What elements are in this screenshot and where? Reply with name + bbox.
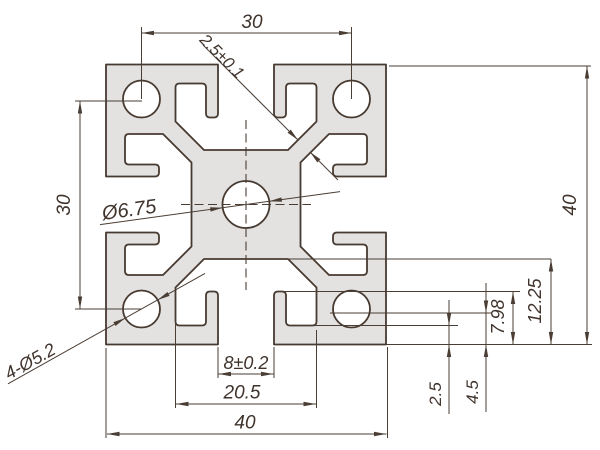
arrowhead — [585, 332, 589, 345]
dim-text-bottom-40: 40 — [234, 413, 256, 434]
dim-text-8-tol: 8±0.2 — [224, 353, 269, 373]
dim-text-2-5: 2.5 — [426, 382, 445, 407]
dim-text-top-30: 30 — [241, 12, 263, 33]
arrowhead — [447, 345, 451, 358]
corner-hole-bottom-right — [333, 291, 370, 328]
dim-text-left-30: 30 — [54, 194, 75, 216]
arrowhead — [288, 130, 300, 142]
arrowhead — [339, 31, 352, 35]
arrowhead — [304, 402, 317, 406]
dim-text-20-5: 20.5 — [223, 383, 261, 404]
arrowhead — [308, 150, 320, 162]
arrowhead — [511, 292, 515, 305]
arrowhead — [142, 31, 155, 35]
arrowhead — [107, 432, 120, 436]
arrowhead — [549, 332, 553, 345]
drawing-canvas: 30 30 40 40 20.5 8±0.2 12.25 7.98 4-Ø5.2… — [0, 0, 600, 450]
arrowhead — [78, 101, 82, 114]
arrowhead — [585, 66, 589, 79]
leader-text-corner-holes: 4-Ø5.2 — [1, 339, 59, 383]
dim-text-7-98: 7.98 — [488, 299, 508, 334]
leader-text-center-bore: Ø6.75 — [100, 196, 159, 226]
dim-text-12-25: 12.25 — [525, 277, 545, 323]
arrowhead — [447, 313, 451, 326]
dim-text-right-40: 40 — [560, 194, 581, 216]
arrowhead — [549, 259, 553, 272]
arrowhead — [176, 402, 189, 406]
dim-text-4-5: 4.5 — [463, 380, 482, 404]
arrowhead — [511, 332, 515, 345]
arrowhead — [484, 345, 488, 358]
arrowhead — [78, 297, 82, 310]
technical-drawing-page: 30 30 40 40 20.5 8±0.2 12.25 7.98 4-Ø5.2… — [0, 0, 600, 450]
arrowhead — [374, 432, 387, 436]
